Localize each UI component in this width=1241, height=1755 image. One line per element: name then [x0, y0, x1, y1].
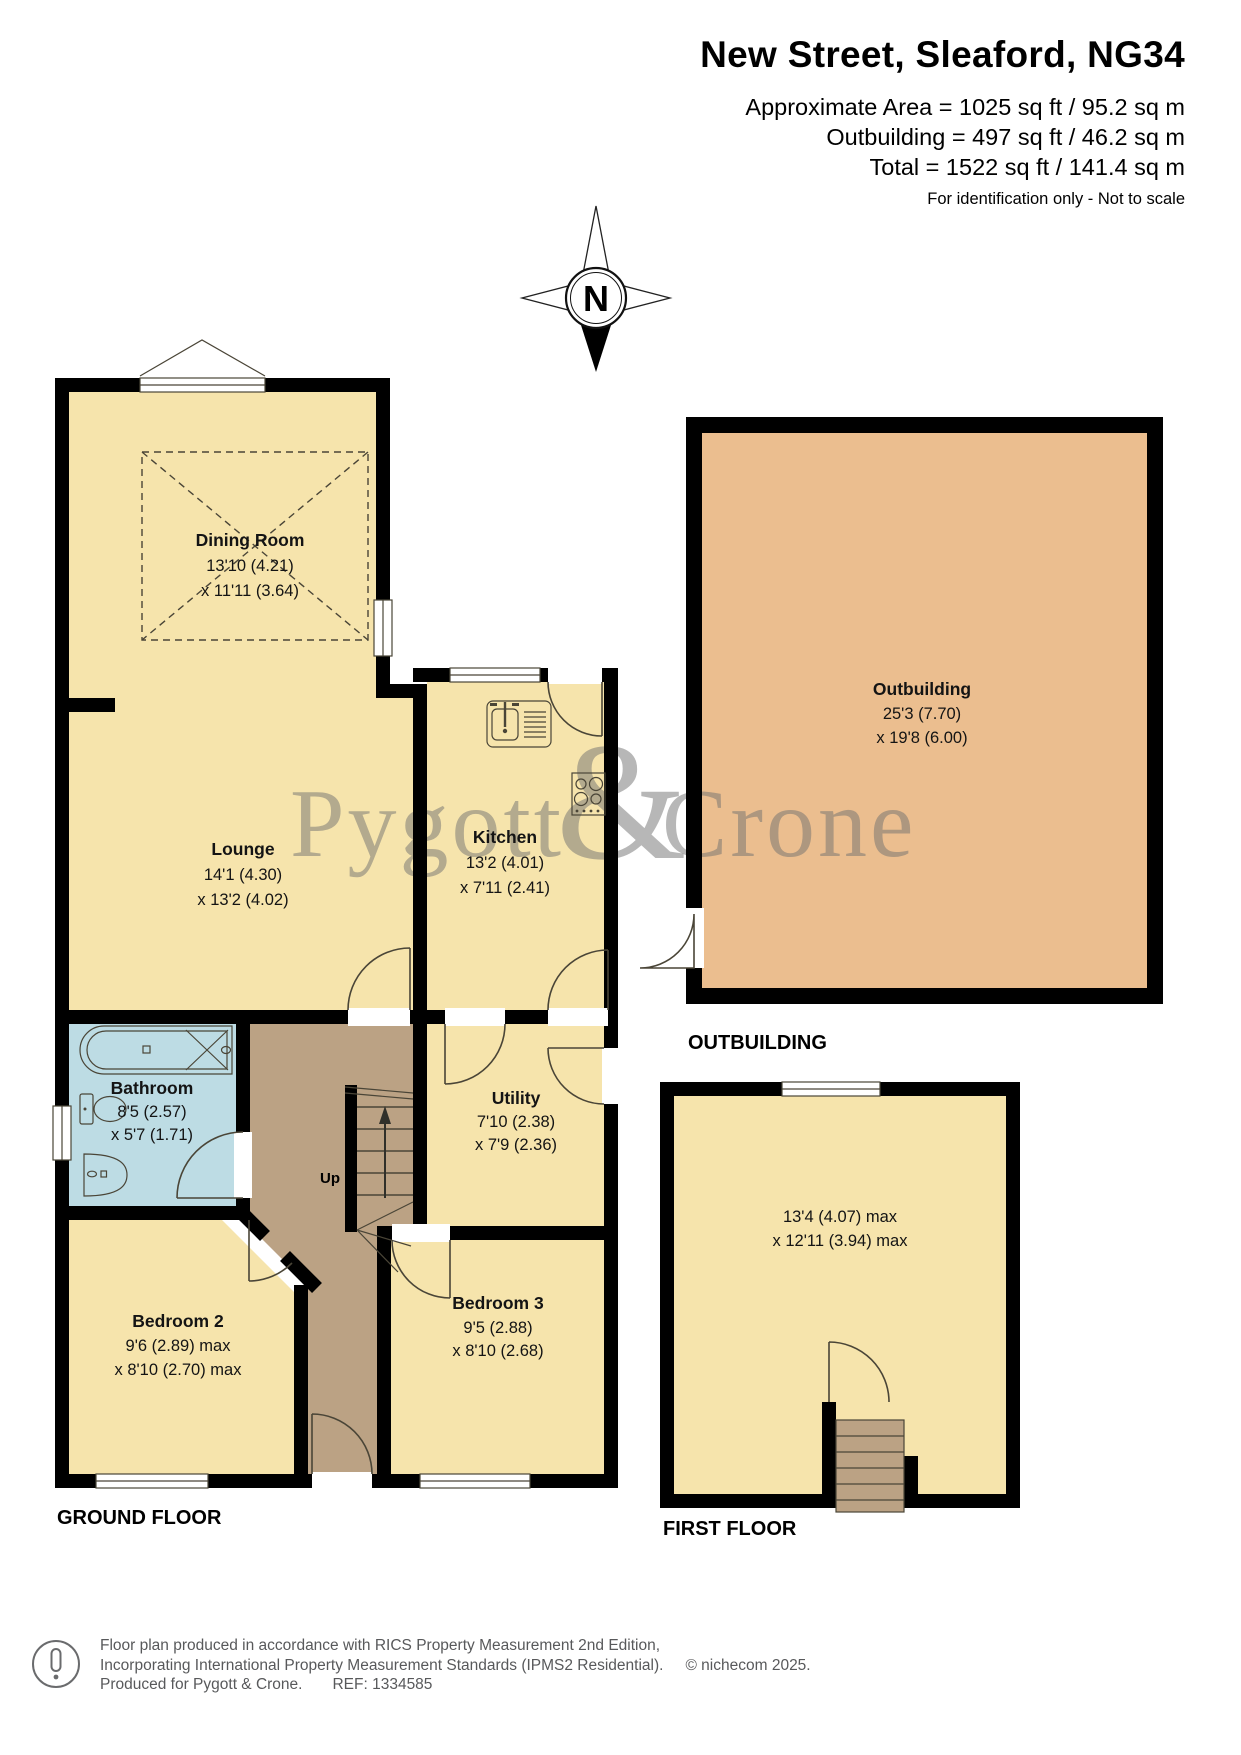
bedroom2-name: Bedroom 2 — [132, 1311, 224, 1331]
outbuilding-dim2: x 19'8 (6.00) — [876, 729, 967, 747]
compass-west-point — [522, 285, 572, 311]
first-floor-caption: FIRST FLOOR — [663, 1518, 797, 1540]
copyright: © nichecom 2025. — [685, 1657, 810, 1674]
bedroom3-dim2: x 8'10 (2.68) — [452, 1342, 543, 1360]
ground-floor-caption: GROUND FLOOR — [57, 1507, 222, 1529]
bay-chevron — [140, 340, 265, 376]
outbuilding-name: Outbuilding — [873, 679, 971, 699]
stairs-up-label: Up — [320, 1170, 340, 1187]
bathroom-dim2: x 5'7 (1.71) — [111, 1126, 193, 1144]
utility-dim1: 7'10 (2.38) — [477, 1113, 555, 1131]
dining-lounge-floor — [69, 392, 413, 1010]
dining-dim1: 13'10 (4.21) — [206, 557, 294, 575]
compass-east-point — [620, 285, 670, 311]
firstfloor-dim2: x 12'11 (3.94) max — [773, 1232, 909, 1250]
floorplan-canvas: Pygott & Crone — [0, 0, 1241, 1755]
outbuilding-caption: OUTBUILDING — [688, 1032, 827, 1054]
utility-dim2: x 7'9 (2.36) — [475, 1136, 557, 1154]
compass: N — [522, 206, 670, 372]
disclaimer-note: For identification only - Not to scale — [700, 190, 1185, 209]
outbuilding-dim1: 25'3 (7.70) — [883, 705, 961, 723]
footer-line2: Incorporating International Property Mea… — [100, 1656, 811, 1676]
kitchen-dim2: x 7'11 (2.41) — [460, 879, 550, 897]
compass-south-point — [580, 322, 612, 372]
footer-line1: Floor plan produced in accordance with R… — [100, 1636, 811, 1656]
header: New Street, Sleaford, NG34 Approximate A… — [700, 34, 1185, 209]
dining-name: Dining Room — [196, 530, 305, 550]
bathroom-dim1: 8'5 (2.57) — [117, 1103, 186, 1121]
compass-letter: N — [583, 278, 609, 319]
outbuilding-area: Outbuilding = 497 sq ft / 46.2 sq m — [700, 122, 1185, 152]
bedroom3-name: Bedroom 3 — [452, 1293, 544, 1313]
compass-north-point — [583, 206, 609, 274]
approximate-area: Approximate Area = 1025 sq ft / 95.2 sq … — [700, 92, 1185, 122]
reference-number: REF: 1334585 — [332, 1676, 432, 1693]
bedroom2-dim1: 9'6 (2.89) max — [126, 1337, 232, 1355]
bedroom2-dim2: x 8'10 (2.70) max — [115, 1361, 243, 1379]
footer-text: Floor plan produced in accordance with R… — [100, 1636, 811, 1695]
dining-dim2: x 11'11 (3.64) — [201, 582, 299, 600]
lounge-name: Lounge — [211, 839, 274, 859]
total-area: Total = 1522 sq ft / 141.4 sq m — [700, 152, 1185, 182]
footer-line3: Produced for Pygott & Crone.REF: 1334585 — [100, 1675, 811, 1695]
kitchen-dim1: 13'2 (4.01) — [466, 854, 544, 872]
nichecom-logo-icon — [30, 1636, 84, 1694]
page-title: New Street, Sleaford, NG34 — [700, 34, 1185, 76]
lounge-dim2: x 13'2 (4.02) — [197, 891, 288, 909]
firstfloor-stairs — [836, 1420, 904, 1512]
bedroom3-dim1: 9'5 (2.88) — [463, 1319, 532, 1337]
firstfloor-dim1: 13'4 (4.07) max — [783, 1208, 898, 1226]
kitchen-name: Kitchen — [473, 827, 537, 847]
lounge-dim1: 14'1 (4.30) — [204, 866, 282, 884]
utility-name: Utility — [492, 1088, 541, 1108]
footer: Floor plan produced in accordance with R… — [30, 1636, 811, 1695]
bathroom-name: Bathroom — [111, 1078, 194, 1098]
